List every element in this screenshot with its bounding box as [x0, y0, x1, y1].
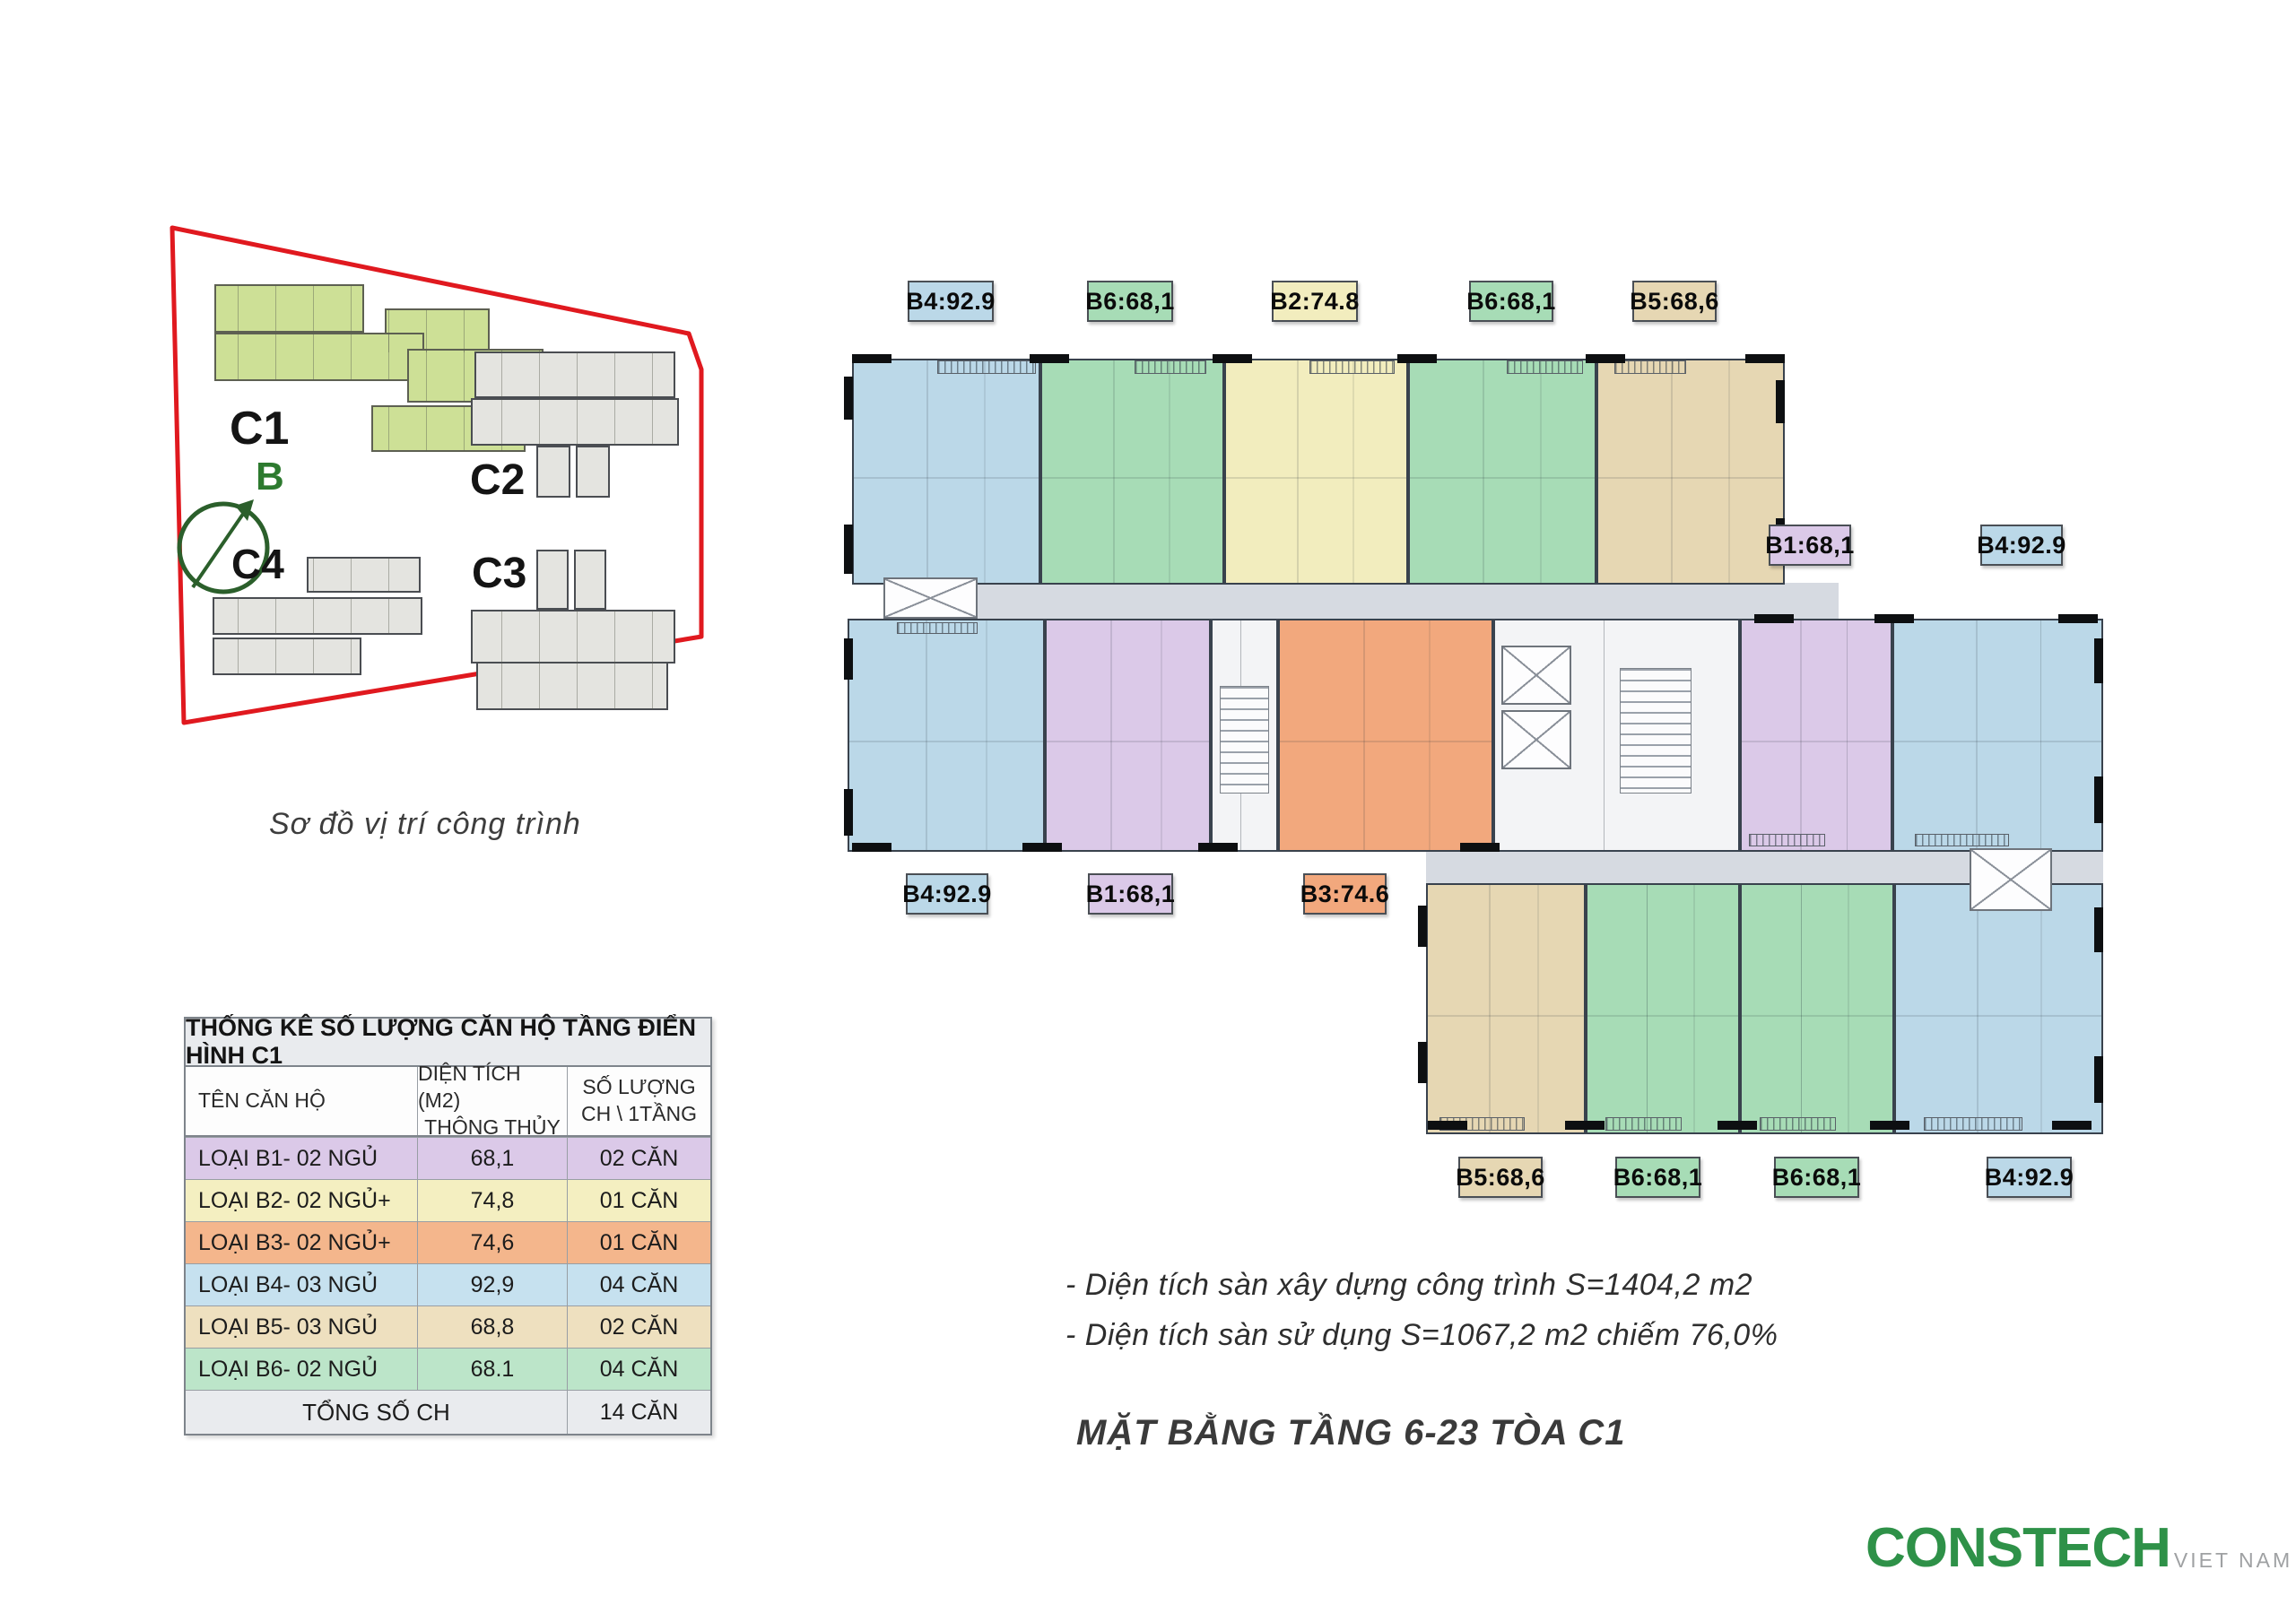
cell-area: 68,1 [417, 1138, 567, 1179]
cell-area: 68.1 [417, 1349, 567, 1390]
cell-name: LOẠI B3- 02 NGỦ+ [186, 1222, 417, 1263]
unit-label-b4: B4:92.9 [908, 281, 994, 322]
building-label-c1: C1 [230, 405, 289, 452]
balcony-hatch [1749, 834, 1825, 846]
wall-segment [1745, 354, 1785, 363]
table-row-b3: LOẠI B3- 02 NGỦ+ 74,6 01 CĂN [186, 1221, 710, 1263]
building-label-c3: C3 [472, 552, 526, 595]
unit-b3-middle [1278, 619, 1493, 852]
wall-segment [1718, 1121, 1757, 1130]
balcony-hatch [1915, 834, 2009, 846]
balcony-hatch [1924, 1117, 2022, 1131]
cell-area: 92,9 [417, 1264, 567, 1305]
unit-b1-middle-left [1045, 619, 1211, 852]
table-row-b4: LOẠI B4- 03 NGỦ 92,9 04 CĂN [186, 1263, 710, 1305]
balcony-hatch [1309, 360, 1395, 374]
unit-b4-top [852, 359, 1040, 585]
wall-segment [844, 377, 853, 420]
cell-area: 74,6 [417, 1222, 567, 1263]
wall-segment [1776, 380, 1785, 423]
wall-segment [1030, 354, 1069, 363]
unit-b5-bottom [1426, 883, 1586, 1134]
building-label-c4: C4 [231, 543, 284, 585]
compass-north-label: B [256, 457, 284, 497]
cell-quantity: 01 CĂN [567, 1222, 710, 1263]
balcony-hatch [897, 622, 978, 634]
table-row-b6: LOẠI B6- 02 NGỦ 68.1 04 CĂN [186, 1348, 710, 1390]
note-line: - Diện tích sàn sử dụng S=1067,2 m2 chiế… [1065, 1310, 1778, 1360]
balcony-hatch [1614, 360, 1686, 374]
wall-segment [844, 789, 853, 836]
wall-segment [1022, 843, 1062, 852]
wall-segment [844, 525, 853, 574]
cell-name: LOẠI B6- 02 NGỦ [186, 1349, 417, 1390]
corridor-upper [888, 583, 1839, 619]
wall-segment [1586, 354, 1625, 363]
table-title: THỐNG KÊ SỐ LƯỢNG CĂN HỘ TẦNG ĐIỂN HÌNH … [186, 1019, 710, 1067]
stairs-icon [1220, 686, 1269, 794]
elevator-box-icon [1501, 646, 1571, 705]
wall-segment [1213, 354, 1252, 363]
unit-label-b3: B3:74.6 [1303, 873, 1387, 915]
apartment-statistics-table: THỐNG KÊ SỐ LƯỢNG CĂN HỘ TẦNG ĐIỂN HÌNH … [184, 1017, 712, 1436]
cell-name: LOẠI B4- 03 NGỦ [186, 1264, 417, 1305]
col-header-area: DIỆN TÍCH (M2)THÔNG THỦY [417, 1067, 567, 1135]
unit-label-b5: B5:68,6 [1458, 1157, 1543, 1198]
wall-segment [1874, 614, 1914, 623]
cell-quantity: 01 CĂN [567, 1180, 710, 1221]
unit-b2-top [1224, 359, 1408, 585]
unit-label-b1: B1:68,1 [1088, 873, 1173, 915]
site-diagram-caption: Sơ đồ vị trí công trình [269, 807, 581, 842]
unit-b1-middle-right [1740, 619, 1892, 852]
balcony-hatch [937, 360, 1036, 374]
building-label-c2: C2 [470, 459, 525, 502]
unit-label-b4: B4:92.9 [1987, 1157, 2072, 1198]
cell-quantity: 04 CĂN [567, 1349, 710, 1390]
cell-area: 74,8 [417, 1180, 567, 1221]
cell-quantity: 04 CĂN [567, 1264, 710, 1305]
wall-segment [1397, 354, 1437, 363]
note-line: - Diện tích sàn xây dựng công trình S=14… [1065, 1260, 1778, 1310]
unit-label-b6: B6:68,1 [1087, 281, 1173, 322]
wall-segment [1754, 614, 1794, 623]
balcony-hatch [1760, 1117, 1836, 1131]
balcony-hatch [1605, 1117, 1682, 1131]
wall-segment [852, 354, 891, 363]
wall-segment [2058, 614, 2098, 623]
wall-segment [852, 843, 891, 852]
wall-segment [844, 638, 853, 680]
wall-segment [2094, 776, 2103, 823]
cell-name: LOẠI B2- 02 NGỦ+ [186, 1180, 417, 1221]
cell-name: LOẠI B1- 02 NGỦ [186, 1138, 417, 1179]
unit-b4-middle-right [1892, 619, 2103, 852]
wall-segment [1198, 843, 1238, 852]
unit-b6-top-1 [1040, 359, 1224, 585]
unit-label-b5: B5:68,6 [1632, 281, 1717, 322]
total-label: TỔNG SỐ CH [186, 1391, 567, 1434]
wall-segment [2094, 638, 2103, 683]
wall-segment [1870, 1121, 1909, 1130]
table-row-b5: LOẠI B5- 03 NGỦ 68,8 02 CĂN [186, 1305, 710, 1348]
table-row-b2: LOẠI B2- 02 NGỦ+ 74,8 01 CĂN [186, 1179, 710, 1221]
elevator-box-icon [883, 577, 978, 619]
unit-b4-middle-left [848, 619, 1045, 852]
unit-label-b6: B6:68,1 [1615, 1157, 1700, 1198]
unit-label-b6: B6:68,1 [1774, 1157, 1859, 1198]
area-notes: - Diện tích sàn xây dựng công trình S=14… [1065, 1260, 1778, 1360]
cell-area: 68,8 [417, 1306, 567, 1348]
balcony-hatch [1135, 360, 1206, 374]
unit-b6-bottom-1 [1586, 883, 1740, 1134]
unit-label-b4: B4:92.9 [1980, 525, 2063, 566]
site-location-diagram [126, 206, 753, 834]
unit-b4-bottom [1894, 883, 2103, 1134]
wall-segment [1565, 1121, 1605, 1130]
wall-segment [1418, 906, 1427, 947]
col-header-quantity: SỐ LƯỢNGCH \ 1TẦNG [567, 1067, 710, 1135]
table-row-b1: LOẠI B1- 02 NGỦ 68,1 02 CĂN [186, 1137, 710, 1179]
total-quantity: 14 CĂN [567, 1391, 710, 1434]
wall-segment [1428, 1121, 1467, 1130]
unit-b5-top [1596, 359, 1785, 585]
cell-name: LOẠI B5- 03 NGỦ [186, 1306, 417, 1348]
wall-segment [1418, 1042, 1427, 1083]
col-header-name: TÊN CĂN HỘ [186, 1067, 417, 1135]
logo-brand-text: CONSTECH [1865, 1521, 2170, 1576]
logo-region-text: VIET NAM [2174, 1550, 2292, 1571]
constech-logo: CONSTECH VIET NAM [1865, 1521, 2292, 1576]
floor-plan-sheet: C1 B C2 C3 C4 Sơ đồ vị trí công trình TH… [0, 0, 2296, 1622]
balcony-hatch [1507, 360, 1583, 374]
stairs-icon [1620, 668, 1692, 794]
unit-label-b2: B2:74.8 [1272, 281, 1358, 322]
unit-b6-top-2 [1408, 359, 1596, 585]
unit-label-b4: B4:92.9 [906, 873, 988, 915]
cell-quantity: 02 CĂN [567, 1138, 710, 1179]
wall-segment [2094, 907, 2103, 952]
wall-segment [1460, 843, 1500, 852]
elevator-box-icon [1501, 710, 1571, 769]
page-title: MẶT BẰNG TẦNG 6-23 TÒA C1 [1076, 1413, 1625, 1453]
elevator-box-icon [1970, 848, 2052, 911]
wall-segment [2052, 1121, 2092, 1130]
table-header-row: TÊN CĂN HỘ DIỆN TÍCH (M2)THÔNG THỦY SỐ L… [186, 1067, 710, 1137]
unit-b6-bottom-2 [1740, 883, 1894, 1134]
wall-segment [2094, 1056, 2103, 1103]
table-total-row: TỔNG SỐ CH 14 CĂN [186, 1390, 710, 1434]
unit-label-b6: B6:68,1 [1469, 281, 1553, 322]
cell-quantity: 02 CĂN [567, 1306, 710, 1348]
unit-label-b1: B1:68,1 [1769, 525, 1851, 566]
